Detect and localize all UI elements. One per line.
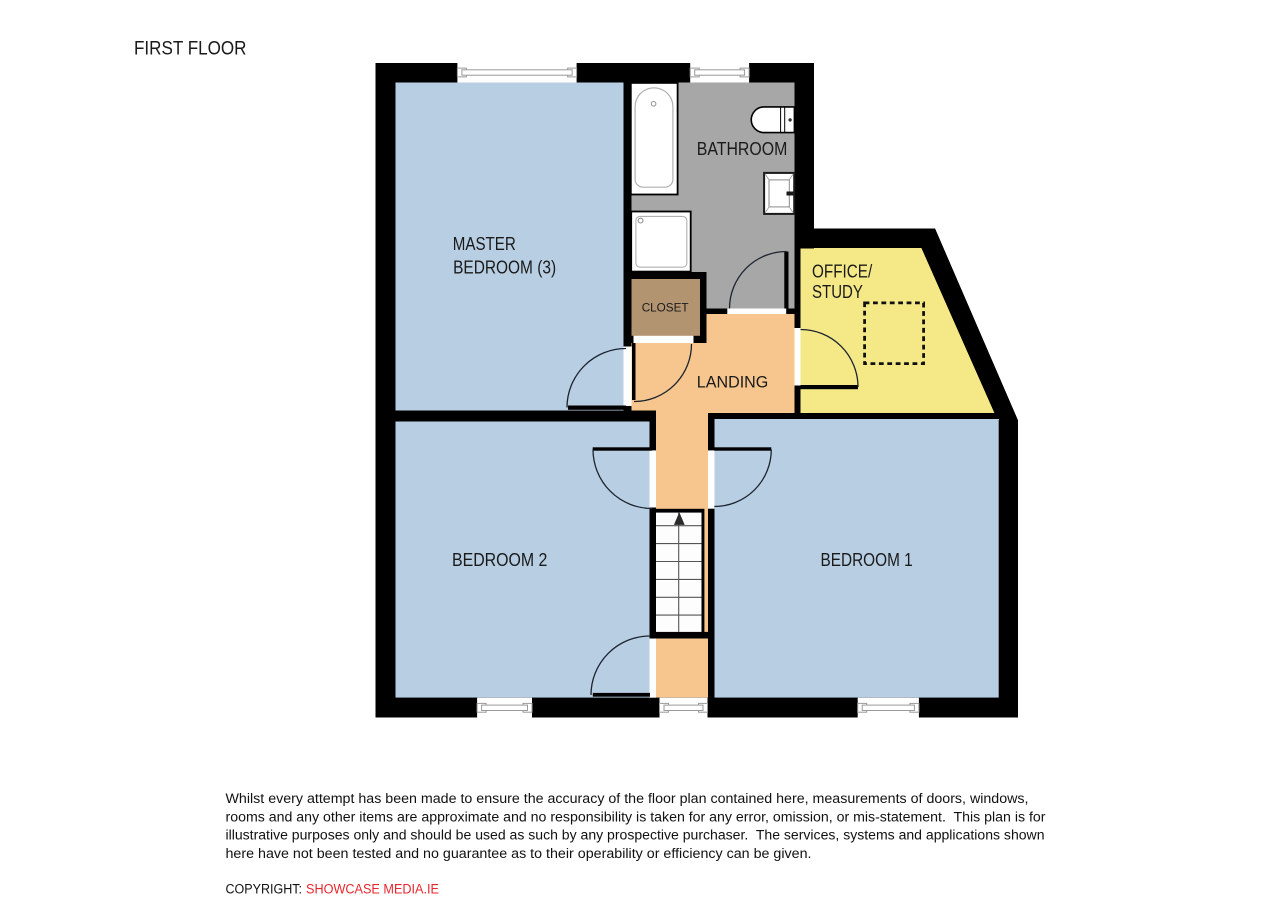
- svg-text:BEDROOM (3): BEDROOM (3): [453, 256, 556, 277]
- svg-text:FIRST FLOOR: FIRST FLOOR: [134, 38, 247, 60]
- svg-text:here have not been tested and: here have not been tested and no guarant…: [226, 846, 812, 862]
- svg-text:OFFICE/: OFFICE/: [812, 260, 873, 281]
- svg-text:MASTER: MASTER: [453, 233, 516, 254]
- svg-text:COPYRIGHT:: COPYRIGHT:: [226, 881, 303, 897]
- svg-text:Whilst every attempt has been: Whilst every attempt has been made to en…: [226, 791, 1029, 807]
- svg-text:rooms and any other items are: rooms and any other items are approximat…: [226, 809, 1046, 825]
- svg-text:STUDY: STUDY: [812, 281, 863, 302]
- svg-text:BEDROOM 1: BEDROOM 1: [821, 549, 913, 570]
- svg-text:BATHROOM: BATHROOM: [697, 138, 788, 159]
- svg-text:LANDING: LANDING: [697, 373, 769, 392]
- svg-text:illustrative purposes only and: illustrative purposes only and should be…: [226, 828, 1045, 844]
- svg-text:BEDROOM 2: BEDROOM 2: [452, 549, 547, 570]
- svg-text:CLOSET: CLOSET: [642, 301, 689, 315]
- svg-text:SHOWCASE MEDIA.IE: SHOWCASE MEDIA.IE: [306, 881, 439, 897]
